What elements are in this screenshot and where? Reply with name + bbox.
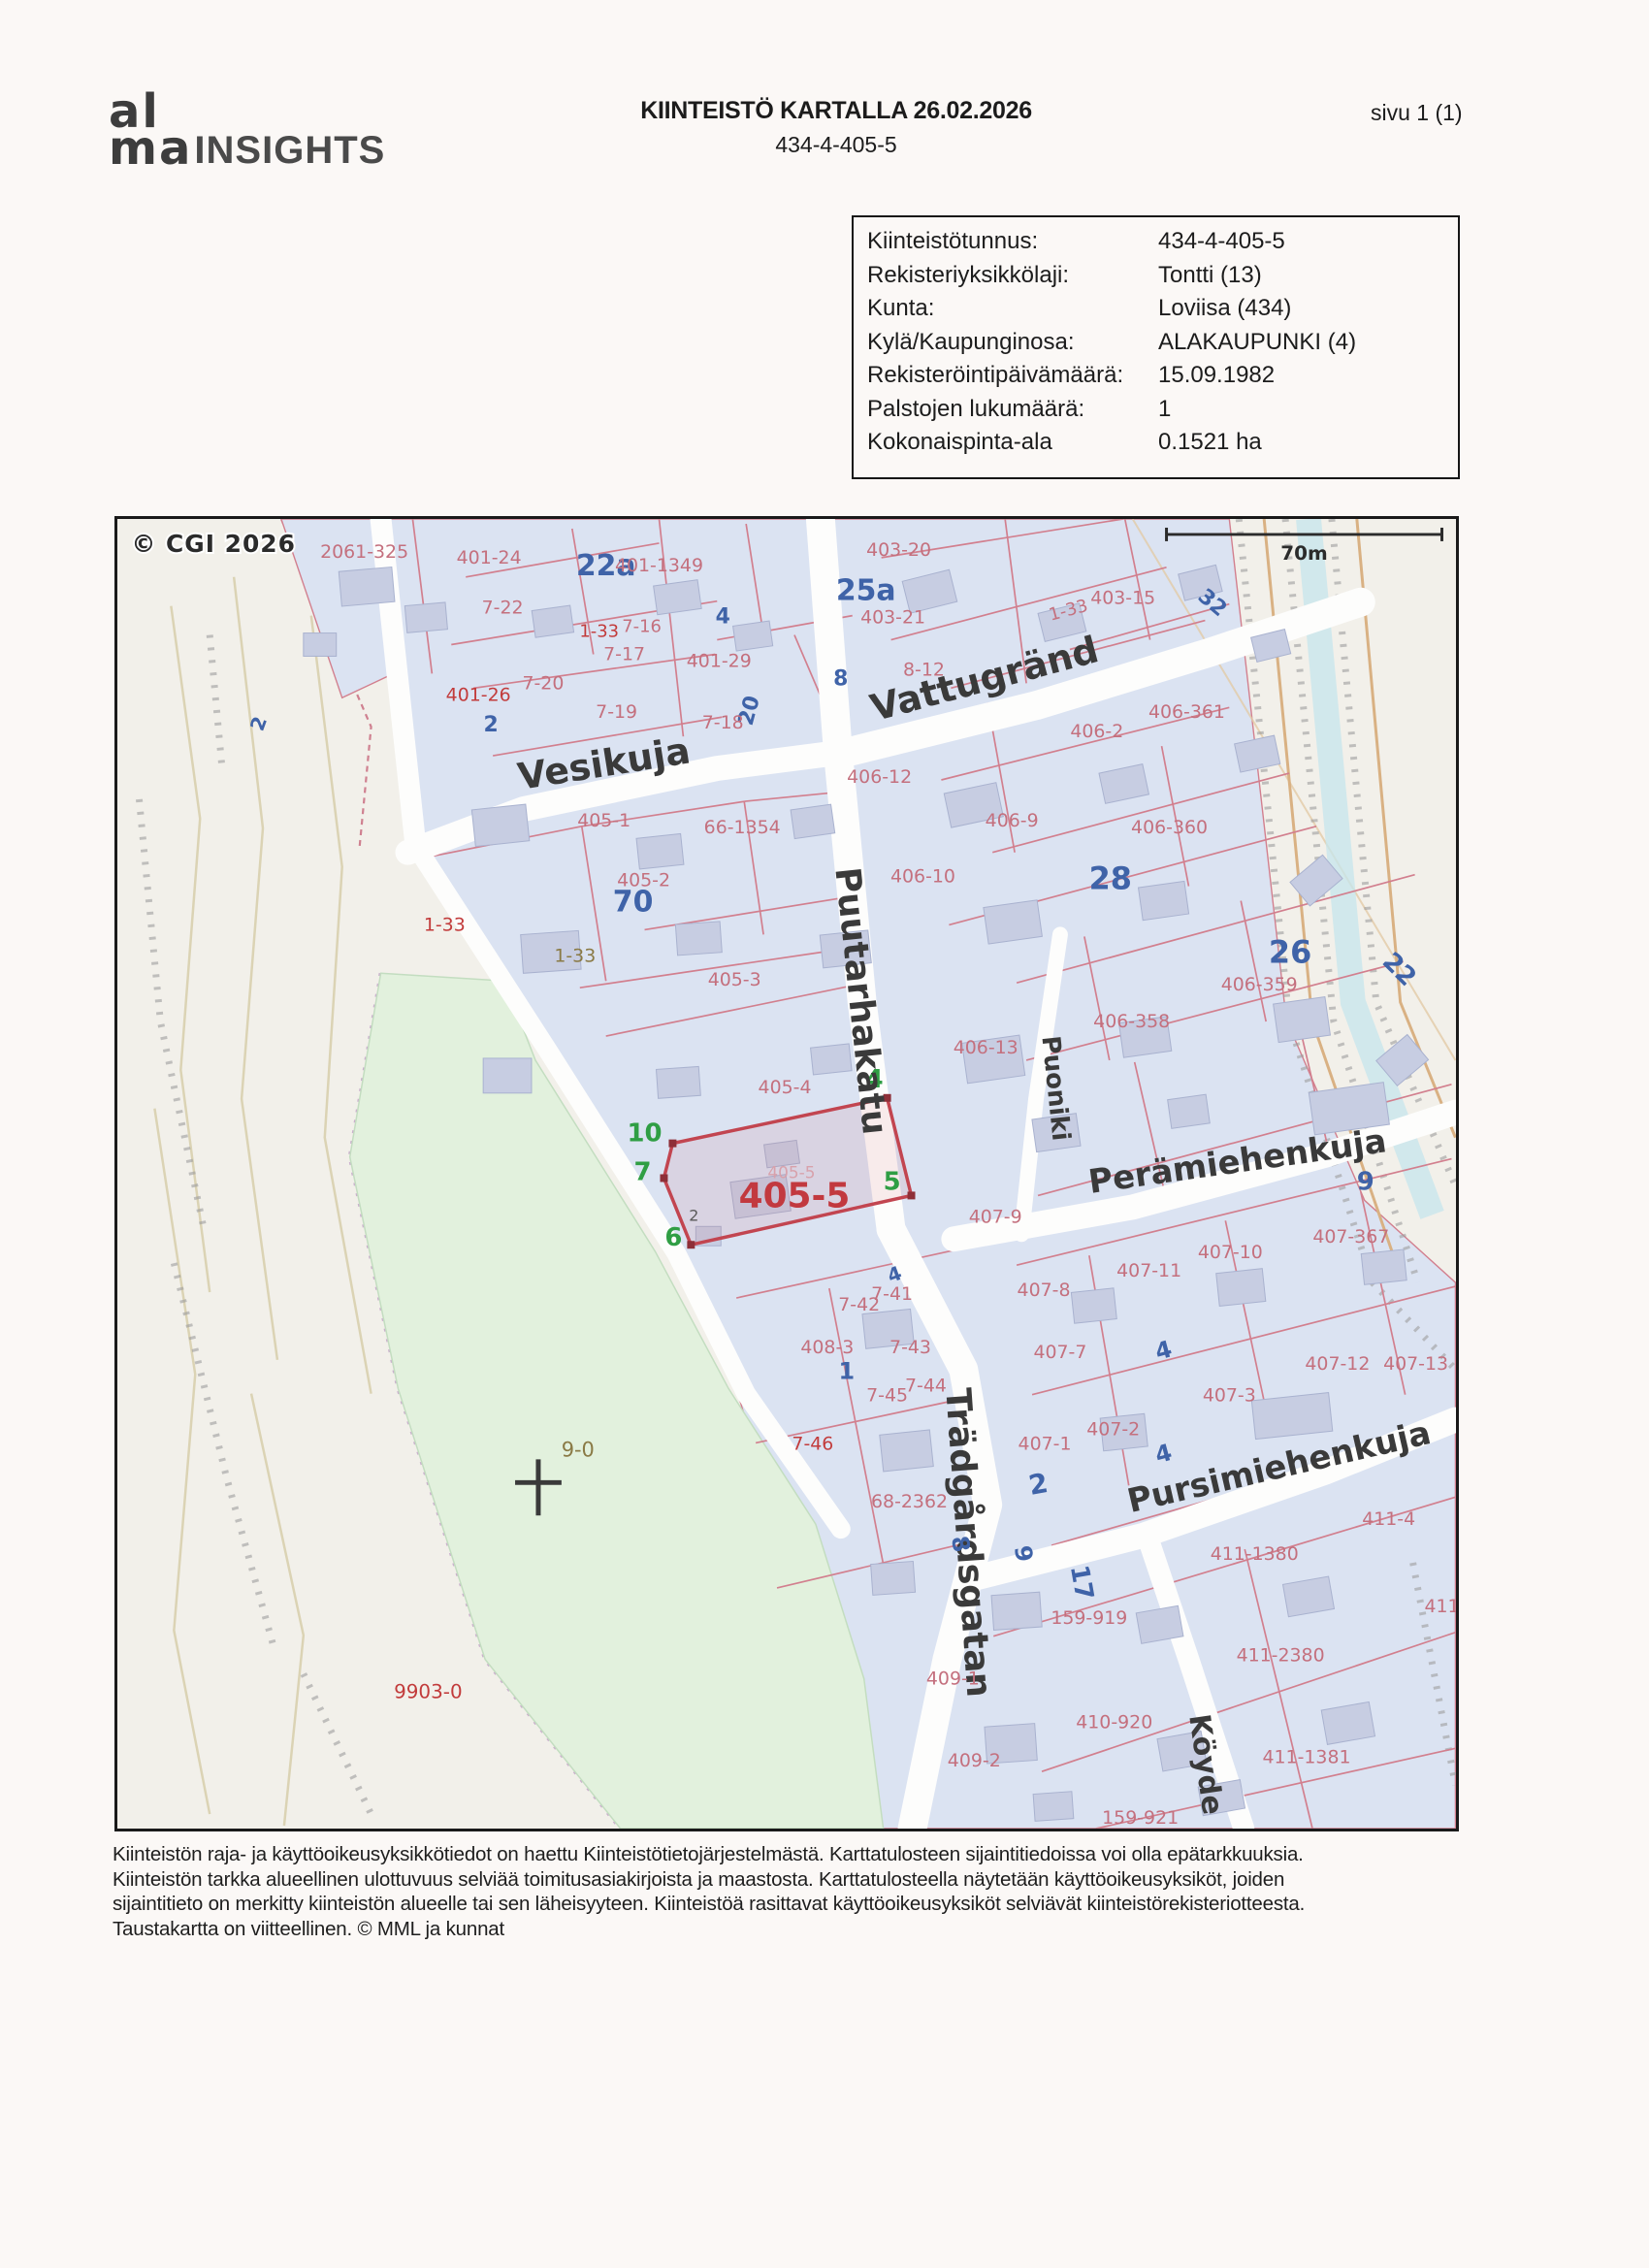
parcel-label-7-22: 7-22 — [482, 598, 524, 619]
parcel-label-9-0: 9-0 — [562, 1438, 595, 1461]
address-number-9: 9 — [1357, 1167, 1374, 1196]
building-footprint — [471, 804, 529, 846]
parcel-label-7-16: 7-16 — [622, 617, 662, 637]
building-footprint — [404, 602, 447, 632]
info-label: Kylä/Kaupunginosa: — [867, 326, 1158, 360]
parcel-label-407-8: 407-8 — [1018, 1280, 1071, 1301]
info-value: Loviisa (434) — [1158, 292, 1458, 326]
document-subtitle: 434-4-405-5 — [640, 132, 1032, 158]
highlight-vertex-dot — [660, 1174, 667, 1182]
building-footprint — [304, 633, 337, 657]
footer-line: Kiinteistön raja- ja käyttöoikeusyksikkö… — [113, 1842, 1529, 1867]
highlight-parcel-label: 405-5 — [739, 1176, 851, 1215]
building-footprint — [675, 922, 722, 956]
parcel-label-1-33: 1-33 — [424, 914, 466, 935]
building-footprint — [654, 580, 702, 615]
parcel-label-405-1: 405-1 — [577, 810, 630, 831]
page-indicator: sivu 1 (1) — [1371, 100, 1463, 126]
parcel-label-7-20: 7-20 — [522, 672, 564, 694]
footer-line: sijaintitieto on merkitty kiinteistön al… — [113, 1892, 1529, 1917]
parcel-label-401-26: 401-26 — [446, 684, 511, 705]
parcel-label-1-33: 1-33 — [554, 945, 596, 966]
parcel-label-68-2362: 68-2362 — [871, 1491, 948, 1512]
parcel-label-7-19: 7-19 — [596, 701, 637, 723]
property-info-table: Kiinteistötunnus:434-4-405-5Rekisteriyks… — [852, 215, 1460, 479]
info-value: 1 — [1158, 393, 1458, 427]
parcel-label-407-10: 407-10 — [1198, 1242, 1263, 1263]
parcel-label-159-919: 159-919 — [1051, 1607, 1127, 1629]
parcel-label-2061-325: 2061-325 — [320, 541, 408, 563]
parcel-label-407-12: 407-12 — [1305, 1353, 1370, 1375]
footer-line: Taustakartta on viitteellinen. © MML ja … — [113, 1917, 1529, 1942]
parcel-label-411-1381: 411-1381 — [1262, 1746, 1350, 1767]
building-footprint — [1168, 1094, 1211, 1128]
parcel-label-66-1354: 66-1354 — [704, 817, 781, 838]
logo-line-2: ma — [109, 130, 192, 167]
parcel-label-407-13: 407-13 — [1383, 1353, 1448, 1375]
info-value: 434-4-405-5 — [1158, 225, 1458, 259]
parcel-label-411-2380: 411-2380 — [1237, 1645, 1325, 1667]
parcel-label-407-9: 407-9 — [969, 1206, 1022, 1227]
parcel-label-410-920: 410-920 — [1076, 1711, 1152, 1733]
parcel-label-7-17: 7-17 — [603, 643, 645, 664]
highlight-vertex-dot — [687, 1241, 695, 1248]
info-value: 0.1521 ha — [1158, 426, 1458, 460]
parcel-label-403-20: 403-20 — [866, 539, 931, 561]
info-label: Kunta: — [867, 292, 1158, 326]
info-value: ALAKAUPUNKI (4) — [1158, 326, 1458, 360]
footer-disclaimer: Kiinteistön raja- ja käyttöoikeusyksikkö… — [113, 1842, 1529, 1941]
boundary-point-number-7: 7 — [634, 1157, 652, 1186]
parcel-label-406-9: 406-9 — [986, 810, 1039, 831]
building-footprint — [1033, 1792, 1074, 1822]
building-footprint — [871, 1562, 916, 1596]
parcel-label-403-15: 403-15 — [1090, 588, 1155, 609]
parcel-label-406-13: 406-13 — [954, 1037, 1018, 1058]
map-copyright: © CGI 2026 — [132, 530, 296, 558]
document-title: KIINTEISTÖ KARTALLA 26.02.2026 — [640, 97, 1032, 125]
building-footprint — [1251, 1393, 1332, 1440]
parcel-label-407-3: 407-3 — [1203, 1385, 1256, 1407]
boundary-point-number-6: 6 — [664, 1223, 682, 1252]
building-footprint — [483, 1058, 532, 1093]
address-number-28: 28 — [1089, 860, 1132, 897]
building-footprint — [1274, 997, 1331, 1043]
parcel-label-401-24: 401-24 — [457, 547, 522, 568]
parcel-label-2: 2 — [689, 1206, 698, 1224]
parcel-label-159-921: 159-921 — [1102, 1807, 1179, 1829]
parcel-label-406-359: 406-359 — [1221, 974, 1298, 995]
building-footprint — [1216, 1269, 1266, 1307]
parcel-label-1-33: 1-33 — [579, 622, 619, 642]
parcel-label-406-361: 406-361 — [1148, 701, 1225, 723]
title-block: KIINTEISTÖ KARTALLA 26.02.2026 434-4-405… — [640, 97, 1032, 158]
highlight-vertex-dot — [668, 1140, 676, 1148]
address-number-1: 1 — [838, 1358, 855, 1385]
footer-line: Kiinteistön tarkka alueellinen ulottuvuu… — [113, 1867, 1529, 1893]
parcel-label-7-43: 7-43 — [889, 1337, 931, 1358]
parcel-label-405-5: 405-5 — [767, 1162, 815, 1182]
info-label: Rekisteröintipäivämäärä: — [867, 359, 1158, 393]
parcel-label-407-1: 407-1 — [1018, 1433, 1072, 1454]
address-number-70: 70 — [613, 886, 654, 920]
info-label: Kiinteistötunnus: — [867, 225, 1158, 259]
info-table-row: Kiinteistötunnus:434-4-405-5 — [867, 225, 1458, 259]
building-footprint — [880, 1430, 933, 1472]
info-table-row: Kylä/Kaupunginosa:ALAKAUPUNKI (4) — [867, 326, 1458, 360]
address-number-2: 2 — [484, 713, 499, 737]
parcel-label-406-360: 406-360 — [1131, 817, 1208, 838]
parcel-label-407-11: 407-11 — [1116, 1260, 1181, 1281]
building-footprint — [1361, 1249, 1406, 1284]
info-label: Palstojen lukumäärä: — [867, 393, 1158, 427]
parcel-label-409-2: 409-2 — [948, 1750, 1001, 1771]
parcel-label-407-367: 407-367 — [1312, 1226, 1389, 1247]
building-footprint — [532, 605, 573, 637]
parcel-label-411: 411 — [1424, 1596, 1456, 1617]
parcel-label-408-3: 408-3 — [800, 1337, 854, 1358]
building-footprint — [733, 621, 773, 651]
parcel-label-7-42: 7-42 — [838, 1294, 880, 1315]
parcel-label-9903-0: 9903-0 — [394, 1680, 463, 1702]
building-footprint — [791, 804, 835, 838]
info-table-row: Palstojen lukumäärä:1 — [867, 393, 1458, 427]
parcel-label-405-3: 405-3 — [708, 969, 761, 990]
map-canvas: 107654405-52061-325401-2422a401-13497-22… — [117, 519, 1456, 1829]
address-number-26: 26 — [1269, 933, 1311, 970]
parcel-label-7-18: 7-18 — [702, 712, 744, 733]
document-page: { "header": { "logo": {"line1": "al", "l… — [0, 0, 1649, 2268]
cadastral-map: 107654405-52061-325401-2422a401-13497-22… — [114, 516, 1459, 1831]
logo-wordmark: INSIGHTS — [194, 133, 385, 168]
boundary-point-number-10: 10 — [628, 1119, 663, 1149]
info-value: 15.09.1982 — [1158, 359, 1458, 393]
parcel-label-405-4: 405-4 — [759, 1077, 812, 1098]
parcel-label-407-7: 407-7 — [1033, 1342, 1086, 1363]
info-table-row: Kokonaispinta-ala0.1521 ha — [867, 426, 1458, 460]
parcel-label-403-21: 403-21 — [860, 607, 925, 629]
parcel-label-406-12: 406-12 — [847, 766, 912, 788]
info-label: Kokonaispinta-ala — [867, 426, 1158, 460]
building-footprint — [1136, 1605, 1183, 1643]
parcel-label-406-2: 406-2 — [1070, 721, 1123, 742]
building-footprint — [636, 833, 684, 868]
parcel-label-7-46: 7-46 — [792, 1433, 833, 1454]
parcel-label-401-29: 401-29 — [687, 650, 752, 671]
building-footprint — [339, 567, 395, 606]
address-number-4: 4 — [716, 605, 730, 630]
parcel-label-409-1: 409-1 — [926, 1669, 980, 1690]
building-footprint — [1139, 881, 1189, 920]
parcel-label-406-358: 406-358 — [1093, 1011, 1170, 1032]
info-value: Tontti (13) — [1158, 259, 1458, 293]
building-footprint — [991, 1592, 1042, 1630]
parcel-label-406-10: 406-10 — [890, 866, 955, 888]
alma-logo: al ma INSIGHTS — [109, 93, 385, 168]
alma-logo-mark: al ma — [109, 93, 192, 168]
parcel-label-407-2: 407-2 — [1086, 1419, 1140, 1441]
info-label: Rekisteriyksikkölaji: — [867, 259, 1158, 293]
address-number-25a: 25a — [836, 574, 896, 608]
parcel-label-411-4: 411-4 — [1362, 1508, 1415, 1530]
highlight-vertex-dot — [908, 1191, 916, 1199]
scale-bar-label: 70m — [1280, 542, 1327, 565]
info-table-row: Rekisteriyksikkölaji:Tontti (13) — [867, 259, 1458, 293]
parcel-label-411-1380: 411-1380 — [1211, 1543, 1299, 1565]
info-table-row: Rekisteröintipäivämäärä:15.09.1982 — [867, 359, 1458, 393]
parcel-label-401-1349: 401-1349 — [615, 555, 703, 576]
parcel-label-7-45: 7-45 — [866, 1385, 908, 1407]
info-table-row: Kunta:Loviisa (434) — [867, 292, 1458, 326]
building-footprint — [657, 1066, 701, 1098]
info-table-rows: Kiinteistötunnus:434-4-405-5Rekisteriyks… — [867, 225, 1458, 460]
building-footprint — [984, 900, 1043, 944]
building-footprint — [1071, 1288, 1116, 1323]
address-number-8: 8 — [833, 666, 848, 691]
address-number-17: 17 — [1064, 1563, 1099, 1603]
boundary-point-number-5: 5 — [884, 1167, 901, 1196]
